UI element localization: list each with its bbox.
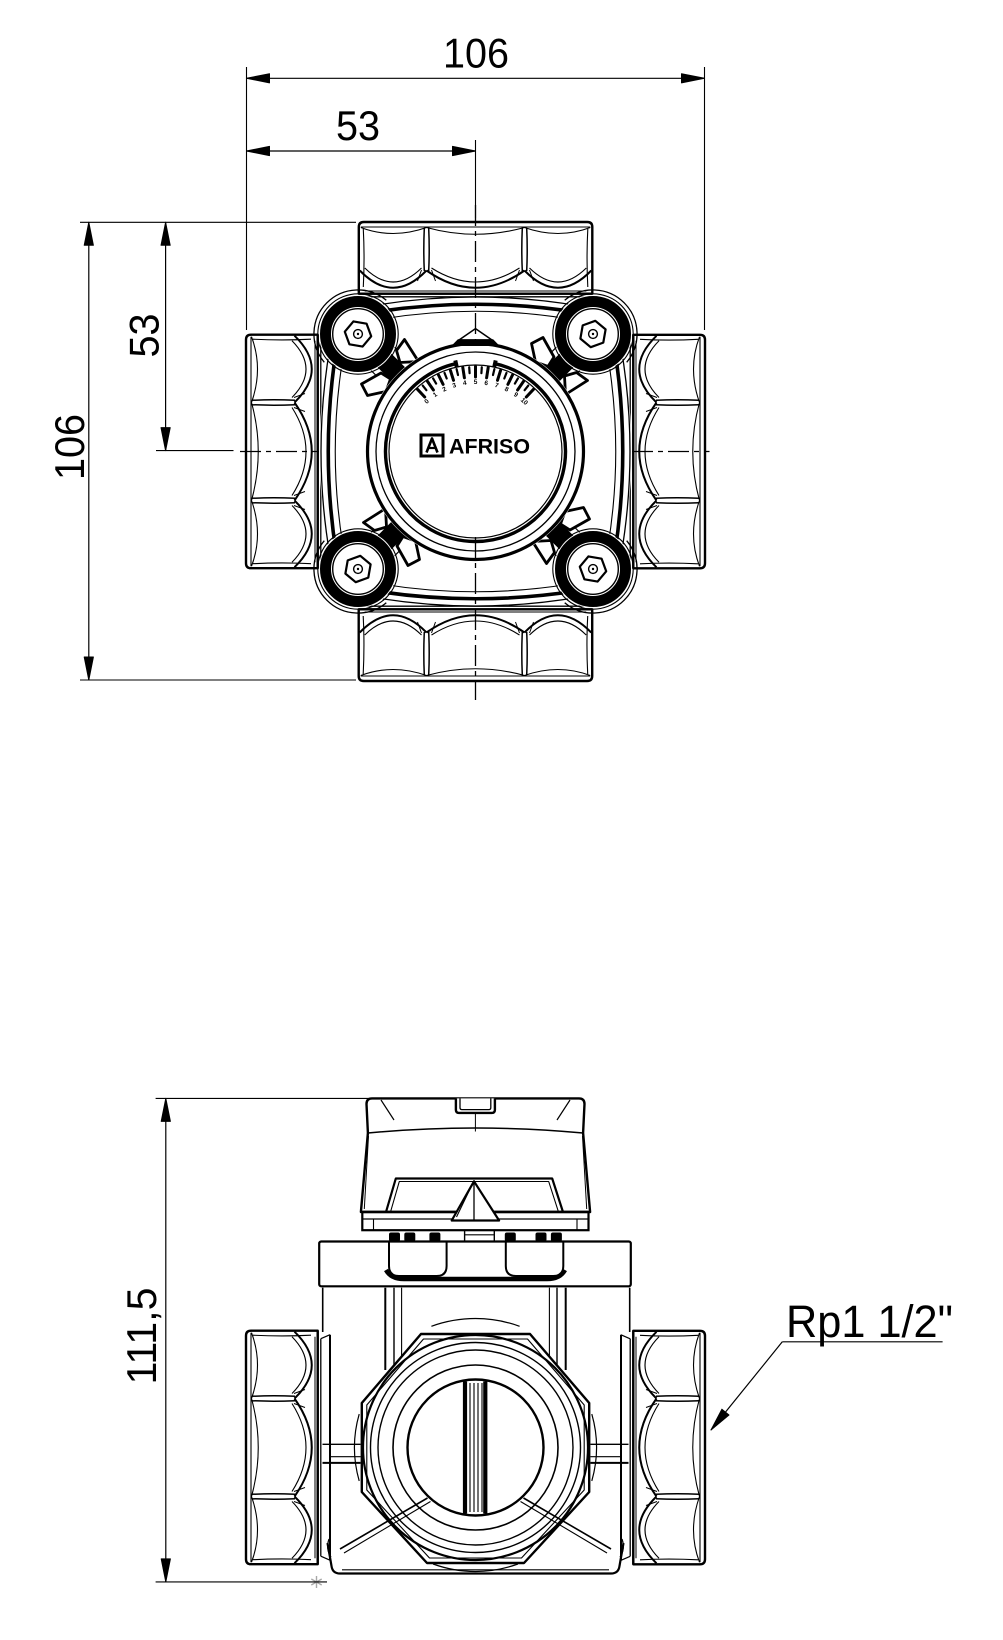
svg-text:5: 5 [474, 379, 478, 386]
svg-text:53: 53 [121, 314, 168, 358]
svg-text:53: 53 [336, 102, 380, 149]
svg-text:AFRISO: AFRISO [449, 435, 530, 459]
svg-text:111,5: 111,5 [118, 1288, 165, 1385]
svg-text:106: 106 [46, 414, 93, 480]
svg-text:Rp1 1/2": Rp1 1/2" [786, 1296, 953, 1347]
svg-text:106: 106 [443, 29, 509, 76]
